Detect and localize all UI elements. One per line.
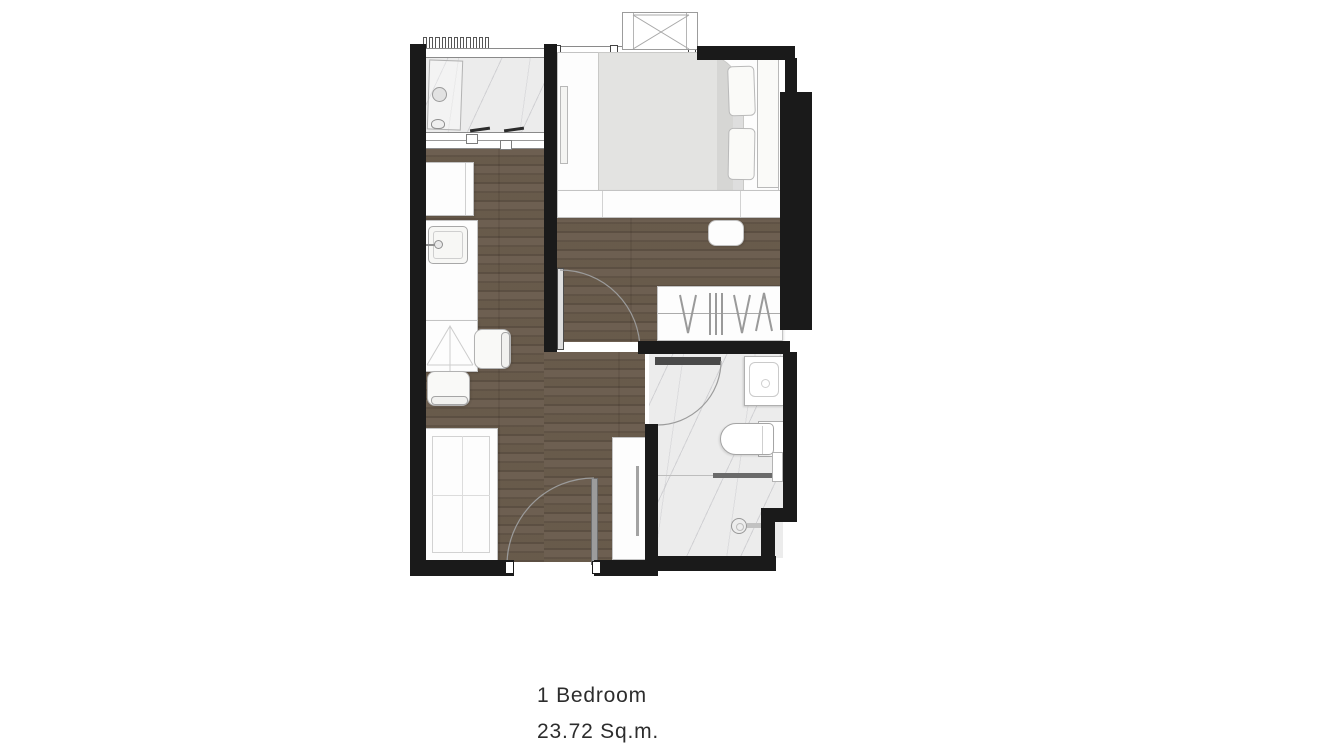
refrigerator xyxy=(424,162,474,216)
bed-duvet xyxy=(598,52,744,193)
bed-side-rail xyxy=(560,86,568,164)
bed-headboard xyxy=(757,56,779,188)
toilet-bowl xyxy=(720,423,774,455)
clothes-hangers-icon xyxy=(658,287,784,342)
ac-condenser-ledge xyxy=(622,12,698,50)
dining-table xyxy=(421,320,478,372)
bathroom-door-swing-arc xyxy=(657,361,723,426)
shower-mixer xyxy=(772,452,783,482)
wall-right-upper xyxy=(785,58,797,94)
bed-foot-bench xyxy=(557,190,784,218)
storage-closet xyxy=(424,428,498,561)
wall-top-right xyxy=(697,46,795,60)
service-shaft-column xyxy=(780,92,812,330)
bathroom-wall-left xyxy=(645,424,658,571)
balcony-tap-icon xyxy=(431,119,445,129)
floor-drain-icon xyxy=(432,87,447,102)
shoe-cabinet xyxy=(612,437,646,560)
wardrobe xyxy=(657,286,783,341)
wall-below-wardrobe xyxy=(638,341,790,354)
stool xyxy=(708,220,744,246)
ac-ledge-cross-lines xyxy=(623,13,699,51)
door-jamb xyxy=(505,561,514,574)
sink-faucet-icon xyxy=(434,240,443,249)
unit-area-label: 23.72 Sq.m. xyxy=(537,720,659,744)
dining-chair-right xyxy=(474,329,511,369)
floor-plan: 1 Bedroom 23.72 Sq.m. xyxy=(0,0,1342,754)
table-fold-lines xyxy=(422,321,479,373)
wall-left xyxy=(410,44,426,566)
pillow xyxy=(727,66,756,117)
washbasin xyxy=(744,356,784,406)
unit-type-label: 1 Bedroom xyxy=(537,684,647,708)
entrance-door-swing-arc xyxy=(507,478,595,566)
shower-head-arm xyxy=(747,523,761,528)
pillow xyxy=(728,128,756,180)
partition-wall-bedroom xyxy=(544,44,557,352)
bedroom-door-swing-arc xyxy=(560,270,642,352)
shower-head-icon xyxy=(731,518,747,534)
bathroom-wall-bottom xyxy=(645,556,776,571)
sink-faucet-arm xyxy=(425,244,435,246)
balcony-railing xyxy=(424,48,545,58)
balcony-sliding-door xyxy=(424,132,546,149)
bathroom-wall-right xyxy=(783,352,797,517)
wall-bottom-left xyxy=(410,560,514,576)
door-jamb xyxy=(592,561,601,574)
dining-chair-bottom xyxy=(427,371,470,406)
